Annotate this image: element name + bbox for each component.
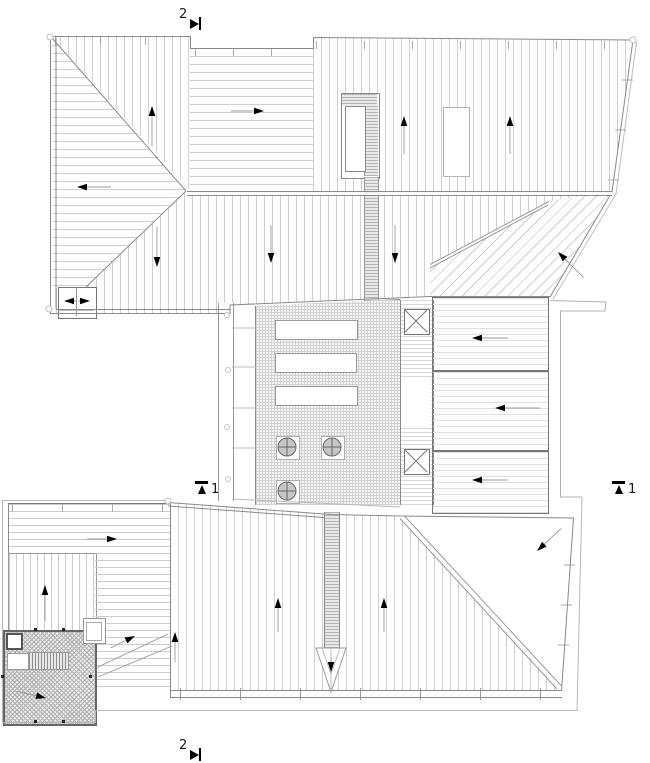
section-marker-label: 2 xyxy=(179,8,187,21)
triangle-right-icon xyxy=(190,750,199,760)
section-marker-2-bottom: 2 xyxy=(179,739,201,761)
section-cut-up-icon xyxy=(195,481,208,494)
terrace-right-strip-gap xyxy=(401,377,431,427)
right-panel-2 xyxy=(432,371,549,451)
chimney-top-band xyxy=(342,94,377,106)
drain-pad xyxy=(276,436,300,460)
stair-hatch xyxy=(28,652,69,670)
edge-ticks xyxy=(180,688,555,700)
right-outline-steps xyxy=(550,301,606,498)
corner-vent-divider xyxy=(59,310,94,311)
x-box xyxy=(404,309,430,335)
triangle-right-icon xyxy=(190,19,199,29)
crosshatch-corner-box xyxy=(6,633,23,650)
section-marker-1-right: 1 xyxy=(612,480,636,496)
section-marker-label: 1 xyxy=(628,483,636,496)
right-panel-1 xyxy=(432,297,549,371)
lower-left-side-field xyxy=(95,553,170,690)
triangle-up-icon xyxy=(198,485,206,494)
crosshatch-white-pad xyxy=(7,653,30,670)
corner-vent-divider xyxy=(76,288,77,316)
drain-pad xyxy=(321,436,345,460)
terrace-ticks xyxy=(232,328,256,448)
right-panel-3 xyxy=(432,451,549,514)
cut-bar-icon xyxy=(612,481,625,484)
triangle-up-icon xyxy=(615,485,623,494)
chimney-side-strip xyxy=(364,106,378,176)
drain-pad xyxy=(276,480,300,504)
cut-bar-icon xyxy=(199,17,201,30)
corner-vent-box xyxy=(58,287,97,319)
cut-bar-icon xyxy=(199,748,201,761)
section-marker-1-left: 1 xyxy=(195,480,219,496)
upper-middle-strip xyxy=(190,48,313,191)
chimney-inner xyxy=(345,106,366,172)
terrace-left-band xyxy=(218,303,234,501)
rooflight xyxy=(443,107,470,177)
small-rooftop-box-inner xyxy=(86,622,102,641)
x-box xyxy=(404,449,430,475)
section-cut-right-icon xyxy=(190,17,201,30)
edge-ticks xyxy=(195,49,307,56)
edge-ticks xyxy=(316,41,628,49)
edge-ticks xyxy=(55,37,185,45)
roof-channel xyxy=(364,177,379,301)
section-marker-label: 2 xyxy=(179,739,187,752)
roof-plan-drawing: 2 2 1 1 xyxy=(0,0,650,763)
section-marker-label: 1 xyxy=(211,483,219,496)
terrace-skylight xyxy=(275,353,357,373)
edge-ticks xyxy=(12,504,164,512)
cut-bar-icon xyxy=(195,481,208,484)
drain-chute xyxy=(324,512,340,648)
section-cut-right-icon xyxy=(190,748,201,761)
terrace-skylight xyxy=(275,386,358,406)
terrace-skylight xyxy=(275,320,358,340)
section-cut-up-icon xyxy=(612,481,625,494)
section-marker-2-top: 2 xyxy=(179,8,201,30)
